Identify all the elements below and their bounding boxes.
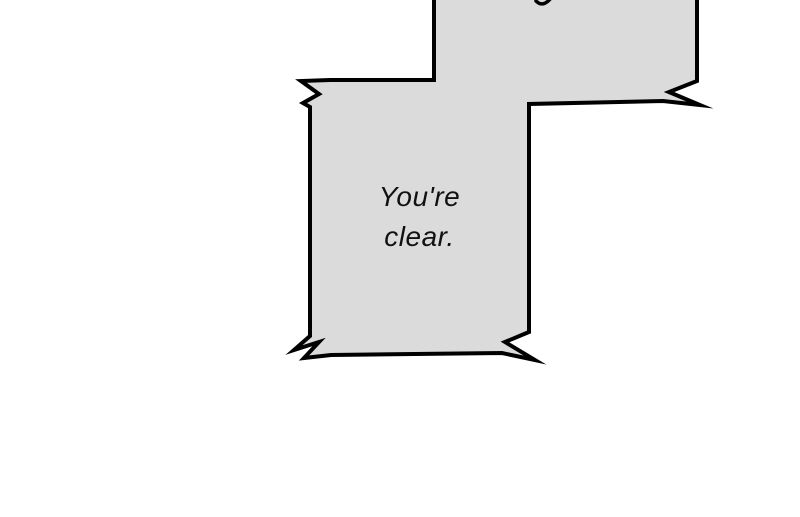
comic-panel: You're clear. [0, 0, 800, 517]
speech-bubble-text: You're clear. [310, 80, 529, 353]
